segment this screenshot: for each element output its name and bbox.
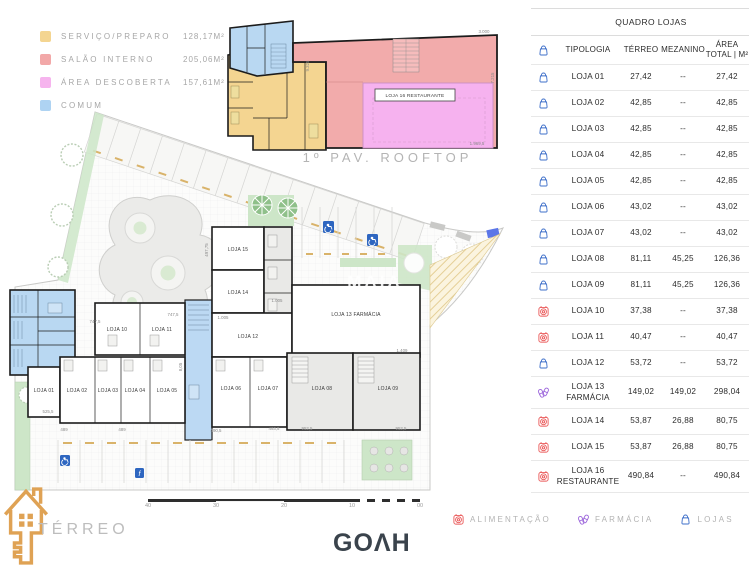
shopping-bag-icon bbox=[537, 175, 550, 188]
table-row: LOJA 09 81,11 45,25 126,36 bbox=[531, 273, 749, 299]
loja-label: LOJA 05 bbox=[157, 388, 178, 394]
loja-label: LOJA 07 bbox=[258, 386, 279, 392]
terreo-area: 149,02 bbox=[621, 387, 661, 397]
loja-name: LOJA 15 bbox=[555, 442, 621, 452]
table-title: QUADRO LOJAS bbox=[531, 8, 749, 36]
table-row: LOJA 10 37,38 -- 37,38 bbox=[531, 299, 749, 325]
loja-name: LOJA 08 bbox=[555, 254, 621, 264]
loja-name: LOJA 10 bbox=[555, 306, 621, 316]
loja-name: LOJA 12 bbox=[555, 358, 621, 368]
loja-label: LOJA 08 bbox=[312, 386, 333, 392]
terreo-area: 27,42 bbox=[621, 72, 661, 82]
terreo-area: 37,38 bbox=[621, 306, 661, 316]
scale-tick: 00 bbox=[417, 503, 423, 509]
loja-name: LOJA 03 bbox=[555, 124, 621, 134]
terreo-area: 43,02 bbox=[621, 228, 661, 238]
terreo-area: 42,85 bbox=[621, 124, 661, 134]
food-icon bbox=[537, 305, 550, 318]
loja-name: LOJA 04 bbox=[555, 150, 621, 160]
landscaping-center bbox=[248, 195, 298, 226]
total-area: 80,75 bbox=[705, 416, 749, 426]
scale-segment bbox=[284, 499, 352, 502]
table-row: LOJA 06 43,02 -- 43,02 bbox=[531, 195, 749, 221]
mezanino-area: -- bbox=[661, 332, 705, 342]
dimension: 952,5 bbox=[302, 426, 314, 431]
middle-building: LOJA 10 LOJA 11 bbox=[95, 303, 185, 355]
mezanino-area: -- bbox=[661, 98, 705, 108]
column-header: TIPOLOGIA bbox=[555, 45, 621, 55]
scale-segment bbox=[216, 499, 284, 502]
terrace-tables bbox=[362, 440, 412, 480]
terreo-area: 42,85 bbox=[621, 150, 661, 160]
shopping-bag-icon bbox=[537, 123, 550, 136]
descoberta-swatch bbox=[40, 77, 51, 88]
windows bbox=[19, 514, 33, 527]
terreo-area: 53,87 bbox=[621, 416, 661, 426]
loja-name: LOJA 16 RESTAURANTE bbox=[555, 466, 621, 487]
table-row: LOJA 14 53,87 26,88 80,75 bbox=[531, 409, 749, 435]
loja-label: LOJA 10 bbox=[107, 327, 128, 333]
accessible-parking-icon bbox=[367, 234, 378, 246]
dimension: 952,5 bbox=[396, 426, 408, 431]
shopping-bag-icon bbox=[537, 44, 550, 57]
total-area: 42,85 bbox=[705, 98, 749, 108]
loja-name: LOJA 01 bbox=[555, 72, 621, 82]
terreo-area: 81,11 bbox=[621, 280, 661, 290]
table-row: LOJA 05 42,85 -- 42,85 bbox=[531, 169, 749, 195]
dimension: 1.409 bbox=[397, 348, 409, 353]
mezanino-area: 26,88 bbox=[661, 416, 705, 426]
shopping-bag-icon bbox=[537, 149, 550, 162]
table-row: LOJA 15 53,87 26,88 80,75 bbox=[531, 435, 749, 461]
food-icon bbox=[537, 331, 550, 344]
dimension: 747,5 bbox=[168, 312, 180, 317]
terreo-area: 53,87 bbox=[621, 442, 661, 452]
total-area: 53,72 bbox=[705, 358, 749, 368]
servico-swatch bbox=[40, 31, 51, 42]
accessible-parking-icon bbox=[60, 455, 70, 466]
legend-item-farmacia: FARMÁCIA bbox=[577, 513, 654, 526]
loja-label: LOJA 13 FARMÁCIA bbox=[331, 311, 381, 318]
table-row: LOJA 11 40,47 -- 40,47 bbox=[531, 325, 749, 351]
mezanino-area: -- bbox=[661, 202, 705, 212]
loja-label: LOJA 03 bbox=[98, 388, 119, 394]
terreo-area: 81,11 bbox=[621, 254, 661, 264]
legend-label: ÁREA DESCOBERTA bbox=[61, 78, 183, 87]
terreo-title: TÉRREO bbox=[38, 521, 129, 539]
mezanino-area: -- bbox=[661, 306, 705, 316]
mezanino-area: -- bbox=[661, 471, 705, 481]
loja-label: LOJA 12 bbox=[238, 334, 259, 340]
legend-label: SALÃO INTERNO bbox=[61, 55, 183, 64]
terreo-area: 42,85 bbox=[621, 98, 661, 108]
table-row: LOJA 08 81,11 45,25 126,36 bbox=[531, 247, 749, 273]
scale-tick: 20 bbox=[281, 503, 287, 509]
mezanino-area: -- bbox=[661, 358, 705, 368]
loja-label: LOJA 11 bbox=[152, 327, 172, 333]
scale-tick: 40 bbox=[145, 503, 151, 509]
legend-item-salao: SALÃO INTERNO 205,06M² bbox=[40, 51, 225, 68]
total-area: 40,47 bbox=[705, 332, 749, 342]
scale-bar-segments bbox=[148, 499, 420, 502]
quadro-lojas-table: QUADRO LOJAS TIPOLOGIA TÉRREO MEZANINO Á… bbox=[531, 8, 749, 493]
lower-building: LOJA 01 LOJA 02 LOJA 03 LOJA 04 LOJA 05 … bbox=[28, 353, 420, 430]
column-header: MEZANINO bbox=[661, 45, 705, 55]
mezanino-area: 149,02 bbox=[661, 387, 705, 397]
column-header: TÉRREO bbox=[621, 45, 661, 55]
goah-logo: GOΛH bbox=[333, 529, 411, 558]
legend-value: 157,61M² bbox=[183, 78, 225, 87]
total-area: 490,84 bbox=[705, 471, 749, 481]
table-header: TIPOLOGIA TÉRREO MEZANINO ÁREA TOTAL | M… bbox=[531, 36, 749, 65]
loja-name: LOJA 11 bbox=[555, 332, 621, 342]
shopping-bag-icon bbox=[537, 97, 550, 110]
rooftop-comum-area bbox=[230, 21, 293, 76]
info-icon: f bbox=[135, 468, 144, 478]
scale-ticks: 40 30 20 10 00 bbox=[148, 503, 420, 511]
loja-label: LOJA 04 bbox=[125, 388, 146, 394]
food-icon bbox=[537, 415, 550, 428]
total-area: 80,75 bbox=[705, 442, 749, 452]
shopping-bag-icon bbox=[537, 71, 550, 84]
total-area: 42,85 bbox=[705, 150, 749, 160]
scale-bar: 40 30 20 10 00 bbox=[148, 499, 420, 511]
legend-item-descoberta: ÁREA DESCOBERTA 157,61M² bbox=[40, 74, 225, 91]
table-row: LOJA 03 42,85 -- 42,85 bbox=[531, 117, 749, 143]
scale-tick: 10 bbox=[349, 503, 355, 509]
legend-item-servico: SERVIÇO/PREPARO 128,17M² bbox=[40, 28, 225, 45]
salao-swatch bbox=[40, 54, 51, 65]
terreo-area: 40,47 bbox=[621, 332, 661, 342]
total-area: 43,02 bbox=[705, 202, 749, 212]
terreo-area: 42,85 bbox=[621, 176, 661, 186]
loja-label: LOJA 06 bbox=[221, 386, 242, 392]
dimension: 489 bbox=[118, 427, 126, 432]
legend-label: SERVIÇO/PREPARO bbox=[61, 32, 183, 41]
shopping-bag-icon bbox=[537, 227, 550, 240]
scale-segment bbox=[352, 499, 420, 502]
loja-name: LOJA 06 bbox=[555, 202, 621, 212]
dimension: 490,5 bbox=[211, 428, 223, 433]
food-icon bbox=[537, 470, 550, 483]
mezanino-area: -- bbox=[661, 176, 705, 186]
dimension: 9.325 bbox=[305, 60, 310, 72]
category-legend: ALIMENTAÇÃO FARMÁCIA LOJAS bbox=[452, 513, 734, 526]
legend-label: LOJAS bbox=[697, 515, 733, 524]
dimension: 747,5 bbox=[90, 319, 102, 324]
mezanino-area: 45,25 bbox=[661, 254, 705, 264]
dimension: 8,05 bbox=[178, 362, 183, 371]
terreo-area: 490,84 bbox=[621, 471, 661, 481]
legend-item-alimentacao: ALIMENTAÇÃO bbox=[452, 513, 551, 526]
table-row: LOJA 01 27,42 -- 27,42 bbox=[531, 65, 749, 91]
dimension: 525,5 bbox=[43, 409, 55, 414]
shopping-bag-icon bbox=[679, 513, 692, 526]
legend-value: 205,06M² bbox=[183, 55, 225, 64]
legend-label: ALIMENTAÇÃO bbox=[470, 515, 551, 524]
total-area: 126,36 bbox=[705, 254, 749, 264]
dimension: 497,75 bbox=[204, 243, 209, 257]
legend-value: 128,17M² bbox=[183, 32, 225, 41]
dimension: 489 bbox=[60, 427, 68, 432]
mezanino-area: -- bbox=[661, 72, 705, 82]
corridor bbox=[185, 300, 212, 440]
mezanino-area: 45,25 bbox=[661, 280, 705, 290]
loja-label: LOJA 15 bbox=[228, 247, 249, 253]
column-header: ÁREA TOTAL | M² bbox=[705, 40, 749, 60]
shopping-bag-icon bbox=[537, 357, 550, 370]
loja-name: LOJA 02 bbox=[555, 98, 621, 108]
total-area: 298,04 bbox=[705, 387, 749, 397]
watermark: MAIA bbox=[347, 272, 402, 291]
table-row: LOJA 04 42,85 -- 42,85 bbox=[531, 143, 749, 169]
total-area: 27,42 bbox=[705, 72, 749, 82]
terreo-floorplan: LOJA 15 LOJA 14 LOJA 12 LOJA 13 FARMÁCIA… bbox=[0, 95, 530, 515]
mezanino-area: -- bbox=[661, 228, 705, 238]
loja-name: LOJA 09 bbox=[555, 280, 621, 290]
table-row: LOJA 07 43,02 -- 43,02 bbox=[531, 221, 749, 247]
terreo-area: 43,02 bbox=[621, 202, 661, 212]
shopping-bag-icon bbox=[537, 253, 550, 266]
loja-label: LOJA 02 bbox=[67, 388, 88, 394]
table-row: LOJA 02 42,85 -- 42,85 bbox=[531, 91, 749, 117]
total-area: 43,02 bbox=[705, 228, 749, 238]
loja-name: LOJA 13 FARMÁCIA bbox=[555, 382, 621, 403]
dimension: 493,5 bbox=[269, 426, 281, 431]
table-row: LOJA 13 FARMÁCIA 149,02 149,02 298,04 bbox=[531, 377, 749, 409]
food-icon bbox=[452, 513, 465, 526]
loja-name: LOJA 05 bbox=[555, 176, 621, 186]
mezanino-area: -- bbox=[661, 150, 705, 160]
dimension: 1.005 bbox=[218, 315, 230, 320]
legend-item-lojas: LOJAS bbox=[679, 513, 733, 526]
shopping-bag-icon bbox=[537, 279, 550, 292]
food-icon bbox=[537, 441, 550, 454]
table-row: LOJA 16 RESTAURANTE 490,84 -- 490,84 bbox=[531, 461, 749, 493]
table-row: LOJA 12 53,72 -- 53,72 bbox=[531, 351, 749, 377]
total-area: 42,85 bbox=[705, 176, 749, 186]
total-area: 37,38 bbox=[705, 306, 749, 316]
loja-name: LOJA 14 bbox=[555, 416, 621, 426]
loja-label: LOJA 14 bbox=[228, 290, 249, 296]
scale-tick: 30 bbox=[213, 503, 219, 509]
pills-icon bbox=[537, 386, 550, 399]
shopping-bag-icon bbox=[537, 201, 550, 214]
total-area: 42,85 bbox=[705, 124, 749, 134]
mezanino-area: 26,88 bbox=[661, 442, 705, 452]
loja-name: LOJA 07 bbox=[555, 228, 621, 238]
total-area: 126,36 bbox=[705, 280, 749, 290]
loja-label: LOJA 09 bbox=[378, 386, 399, 392]
loja-label: LOJA 01 bbox=[34, 388, 55, 394]
legend-label: FARMÁCIA bbox=[595, 515, 654, 524]
terreo-area: 53,72 bbox=[621, 358, 661, 368]
mezanino-area: -- bbox=[661, 124, 705, 134]
dimension: 7.215 bbox=[490, 72, 495, 84]
scale-segment bbox=[148, 499, 216, 502]
dimension: 1.005 bbox=[272, 298, 284, 303]
house-key-body bbox=[11, 510, 42, 563]
accessible-parking-icon bbox=[323, 221, 334, 233]
pills-icon bbox=[577, 513, 590, 526]
dimension: 3.000 bbox=[479, 29, 491, 34]
